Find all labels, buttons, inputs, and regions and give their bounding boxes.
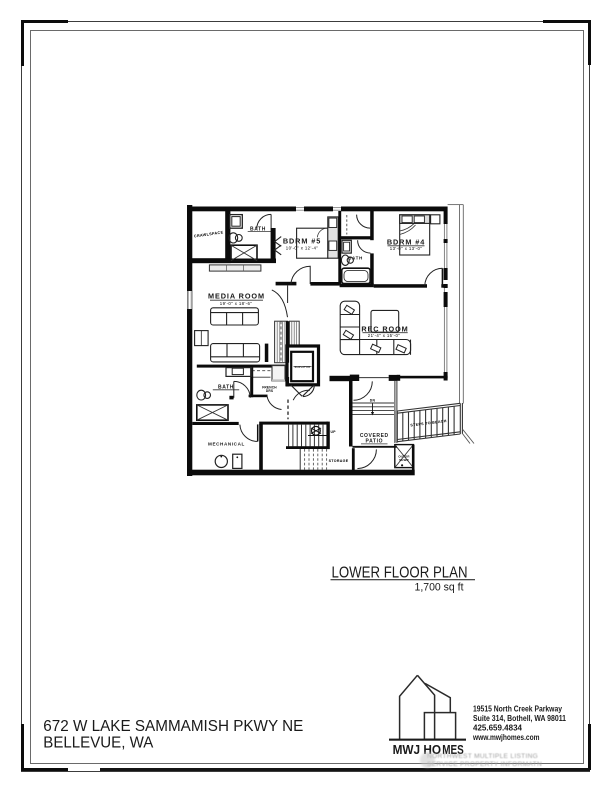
svg-text:1,700 sq ft: 1,700 sq ft: [415, 582, 464, 594]
svg-text:425.659.4834: 425.659.4834: [473, 723, 523, 732]
svg-text:672 W LAKE SAMMAMISH PKWY NE: 672 W LAKE SAMMAMISH PKWY NE: [43, 718, 303, 735]
svg-text:Suite 314, Bothell, WA 98011: Suite 314, Bothell, WA 98011: [473, 714, 566, 723]
svg-text:BELLEVUE, WA: BELLEVUE, WA: [43, 734, 153, 751]
svg-text:19515 North Creek Parkway: 19515 North Creek Parkway: [473, 704, 562, 713]
svg-text:www.mwjhomes.com: www.mwjhomes.com: [472, 733, 539, 742]
